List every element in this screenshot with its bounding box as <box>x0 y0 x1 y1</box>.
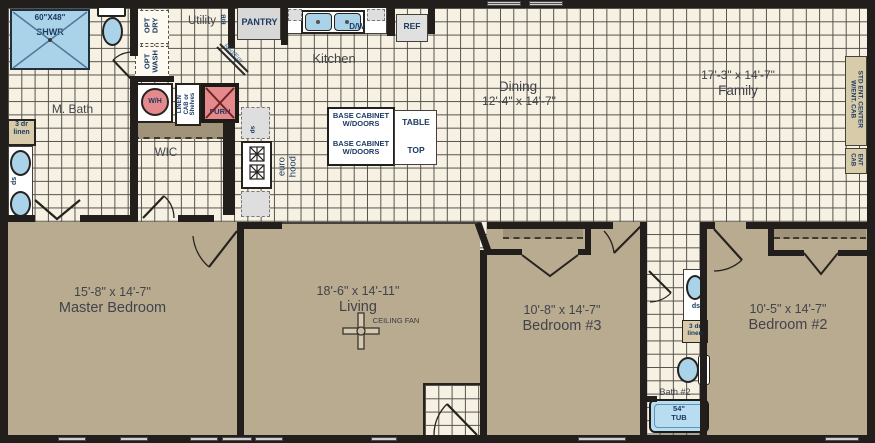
furnace-label: FURN <box>204 108 236 116</box>
stove-cabinet-lower <box>241 191 270 217</box>
room-label-wic: WIC <box>143 147 189 160</box>
mbath-linen-line2: linen <box>7 129 36 137</box>
opt-dry-label: OPT DRY <box>144 6 161 44</box>
linen-cab-line1: LINEN <box>177 73 184 135</box>
wall-right <box>867 0 875 443</box>
linen-cab-line3: Shelves <box>190 73 197 135</box>
opt-wash-label: OPT WASH <box>144 42 161 80</box>
wall-utility-right <box>228 8 235 48</box>
window-bedroom2 <box>825 437 859 441</box>
master-dims: 15'-8" x 14'-7" <box>25 285 200 299</box>
mbath-linen-line1: 3 dr <box>7 121 36 129</box>
wall-master-living <box>237 222 244 436</box>
wall-ref-left <box>387 0 395 36</box>
window-bedroom3 <box>578 437 626 441</box>
table-label: TABLE <box>396 118 436 128</box>
room-label-family: Family <box>703 83 773 98</box>
wall-main-c <box>178 215 214 222</box>
wall-left <box>0 0 8 443</box>
wall-bed3-closet-front-r <box>578 249 591 255</box>
top-label: TOP <box>396 146 436 156</box>
room-label-dining: Dining <box>482 79 554 94</box>
tub-label: TUB <box>661 414 697 422</box>
room-label-utility: Utility <box>176 15 228 28</box>
ent-center-line2: W/ENT. CAB <box>849 55 856 143</box>
base-cab2-line2: W/DOORS <box>330 148 392 156</box>
ent-center-line1: STD ENT. CENTER <box>856 55 863 143</box>
wall-mbath-2 <box>130 80 138 222</box>
ent-cab-line2: CAB <box>849 147 856 173</box>
refrigerator-label: REF <box>397 22 427 32</box>
room-label-bedroom3: Bedroom #3 <box>503 318 621 334</box>
toilet-bath2-bowl <box>677 357 699 383</box>
bath2-ds-label: ds <box>687 303 705 311</box>
wall-ref-right <box>428 0 435 34</box>
shower-size-label: 60"X48" <box>18 14 82 23</box>
bedroom3-dims: 10'-8" x 14'-7" <box>503 303 621 317</box>
room-label-kitchen: Kitchen <box>303 52 365 67</box>
wall-main-a <box>8 215 35 222</box>
opt-wash-line2: WASH <box>152 42 160 80</box>
base-cabinet-label-1: BASE CABINET W/DOORS <box>330 112 392 129</box>
wall-mbath-1 <box>130 8 138 56</box>
window-family-1 <box>487 1 521 6</box>
sink-basin-left <box>305 13 332 31</box>
wall-bedroom2-top-r <box>746 222 867 229</box>
wall-living-stub <box>244 222 282 229</box>
dishwasher-label: D/W <box>344 23 370 32</box>
window-living-4 <box>371 437 397 441</box>
euro-hood-label: euro hood <box>277 145 298 189</box>
ent-center-label: STD ENT. CENTER W/ENT. CAB <box>849 55 864 143</box>
dining-dims: 12'-4" x 14'-7" <box>473 95 565 108</box>
counter-cabinet-2 <box>367 9 385 21</box>
room-label-bath2: Bath #2 <box>650 387 700 397</box>
master-bedroom-floor <box>8 222 237 436</box>
base-cab1-line2: W/DOORS <box>330 120 392 128</box>
furnace <box>201 83 239 123</box>
bedroom2-dims: 10'-5" x 14'-7" <box>728 302 848 316</box>
water-heater-label: W/H <box>139 98 171 106</box>
floor-plan: 60"X48" SHWR M. Bath 3 dr linen ds OPT D… <box>0 0 875 443</box>
room-label-mbath: M. Bath <box>35 103 110 116</box>
mbath-linen-label: 3 dr linen <box>7 121 36 137</box>
family-dims: 17'-3" x 14'-7" <box>688 69 788 82</box>
opt-dry-line2: DRY <box>152 6 160 44</box>
counter-cabinet-1 <box>288 9 302 21</box>
linen-cab-line2: CAB or <box>184 73 191 135</box>
bath2-linen-line1: 3 dr <box>682 323 708 330</box>
stove-ds-label: ds <box>249 119 256 141</box>
ent-cab-line1: ENT <box>856 147 863 173</box>
euro-line2: hood <box>288 145 299 189</box>
window-master-2 <box>120 437 148 441</box>
wall-bed3-closet-front-l <box>487 249 522 255</box>
window-master-1 <box>58 437 86 441</box>
wall-bedroom3-left <box>480 250 487 436</box>
wall-bed2-closet-front-r <box>838 250 867 256</box>
wall-main-b <box>80 215 135 222</box>
window-living-3 <box>255 437 283 441</box>
wall-wic-right <box>223 122 235 215</box>
bath2-linen-line2: linen <box>682 330 708 337</box>
base-cabinet-label-2: BASE CABINET W/DOORS <box>330 140 392 157</box>
window-living-2 <box>222 437 252 441</box>
wall-bedroom3-top <box>487 222 613 229</box>
window-living-1 <box>190 437 218 441</box>
wall-bed2-closet-front-l <box>768 250 804 256</box>
range-counter <box>241 141 272 189</box>
toilet-mbath-bowl <box>102 17 123 46</box>
entry-tile <box>423 383 481 435</box>
wall-hall-left <box>640 222 647 436</box>
ent-cab-label: ENT CAB <box>849 147 862 173</box>
shower-label: SHWR <box>18 27 82 37</box>
bath2-linen-label: 3 dr linen <box>682 323 708 338</box>
room-label-master: Master Bedroom <box>25 300 200 316</box>
mbath-ds-label: ds <box>11 168 19 194</box>
mbath-sink-2 <box>10 191 31 217</box>
wall-bedroom2-top-l <box>707 222 715 229</box>
window-family-2 <box>529 1 563 6</box>
linen-cab-label: LINEN CAB or Shelves <box>177 73 197 135</box>
ceiling-fan-label: CEILING FAN <box>364 317 428 325</box>
room-label-bedroom2: Bedroom #2 <box>728 317 848 333</box>
living-dims: 18'-6" x 14'-11" <box>298 284 418 298</box>
bb-label: B/B <box>222 8 229 30</box>
wall-top <box>0 0 875 8</box>
wall-pantry-right <box>281 7 288 45</box>
room-label-living: Living <box>298 299 418 315</box>
pantry-label: PANTRY <box>239 17 280 27</box>
